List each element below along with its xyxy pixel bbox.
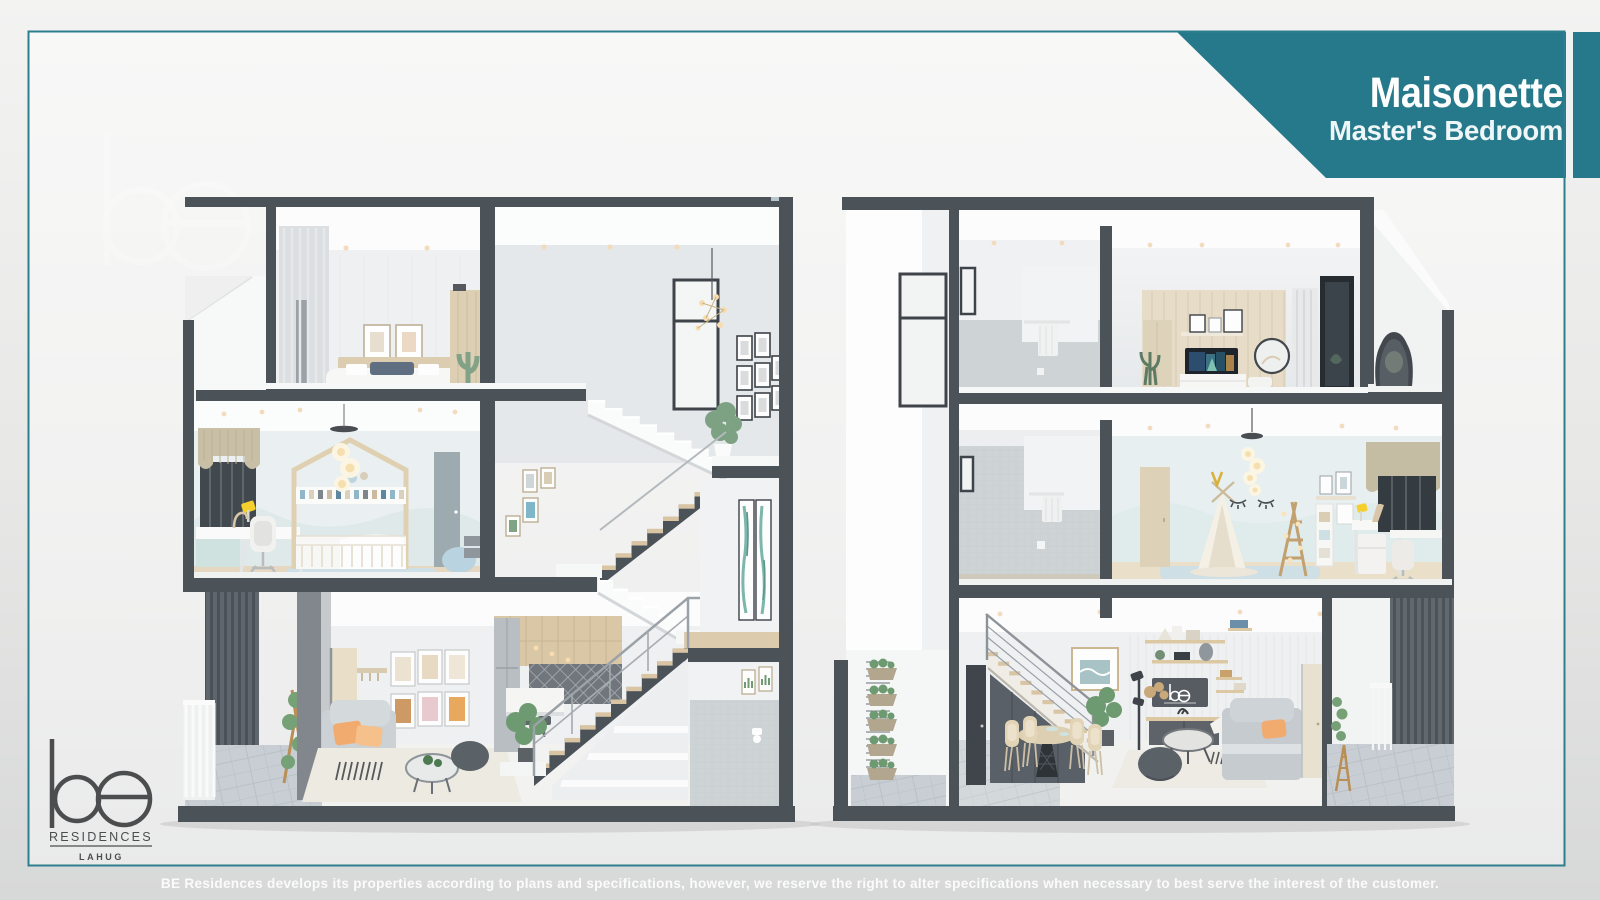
svg-text:LAHUG: LAHUG <box>79 852 124 862</box>
svg-text:BE Residences develops its pro: BE Residences develops its properties ac… <box>161 876 1439 891</box>
svg-text:Master's Bedroom: Master's Bedroom <box>1329 115 1563 146</box>
svg-text:Maisonette: Maisonette <box>1370 68 1563 117</box>
svg-text:RESIDENCES: RESIDENCES <box>49 830 153 844</box>
